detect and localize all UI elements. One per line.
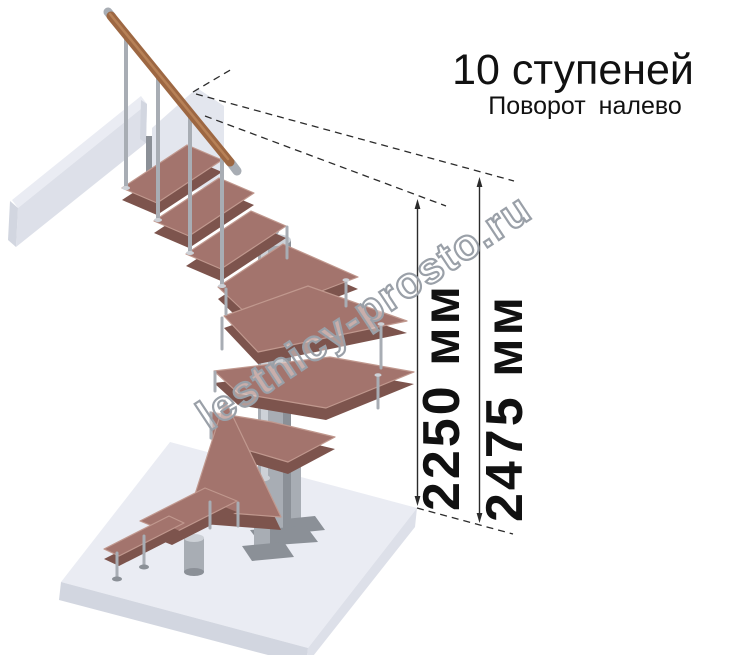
upper-floor-slab xyxy=(8,96,157,247)
dimension-label-2250: 2250 мм xyxy=(413,283,471,511)
support-cylinder xyxy=(184,534,204,576)
product-diagram-page: 2250 мм 2475 мм 10 ступеней Поворот нале… xyxy=(0,0,744,655)
page-title: 10 ступеней xyxy=(452,46,694,94)
page-subtitle: Поворот налево xyxy=(488,92,682,120)
dimension-label-2475: 2475 мм xyxy=(476,294,534,522)
staircase-diagram: 2250 мм 2475 мм 10 ступеней Поворот нале… xyxy=(0,0,744,655)
